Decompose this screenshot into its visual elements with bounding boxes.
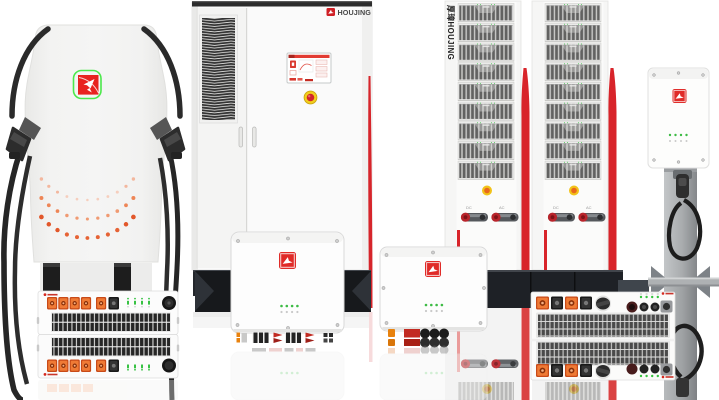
svg-text:DC: DC [466, 205, 472, 210]
svg-text:厚璋HOUJING: 厚璋HOUJING [446, 5, 456, 60]
svg-text:AC: AC [586, 205, 592, 210]
svg-text:AC: AC [499, 205, 505, 210]
svg-text:DC: DC [553, 205, 559, 210]
svg-text:HOUJING: HOUJING [338, 8, 372, 17]
